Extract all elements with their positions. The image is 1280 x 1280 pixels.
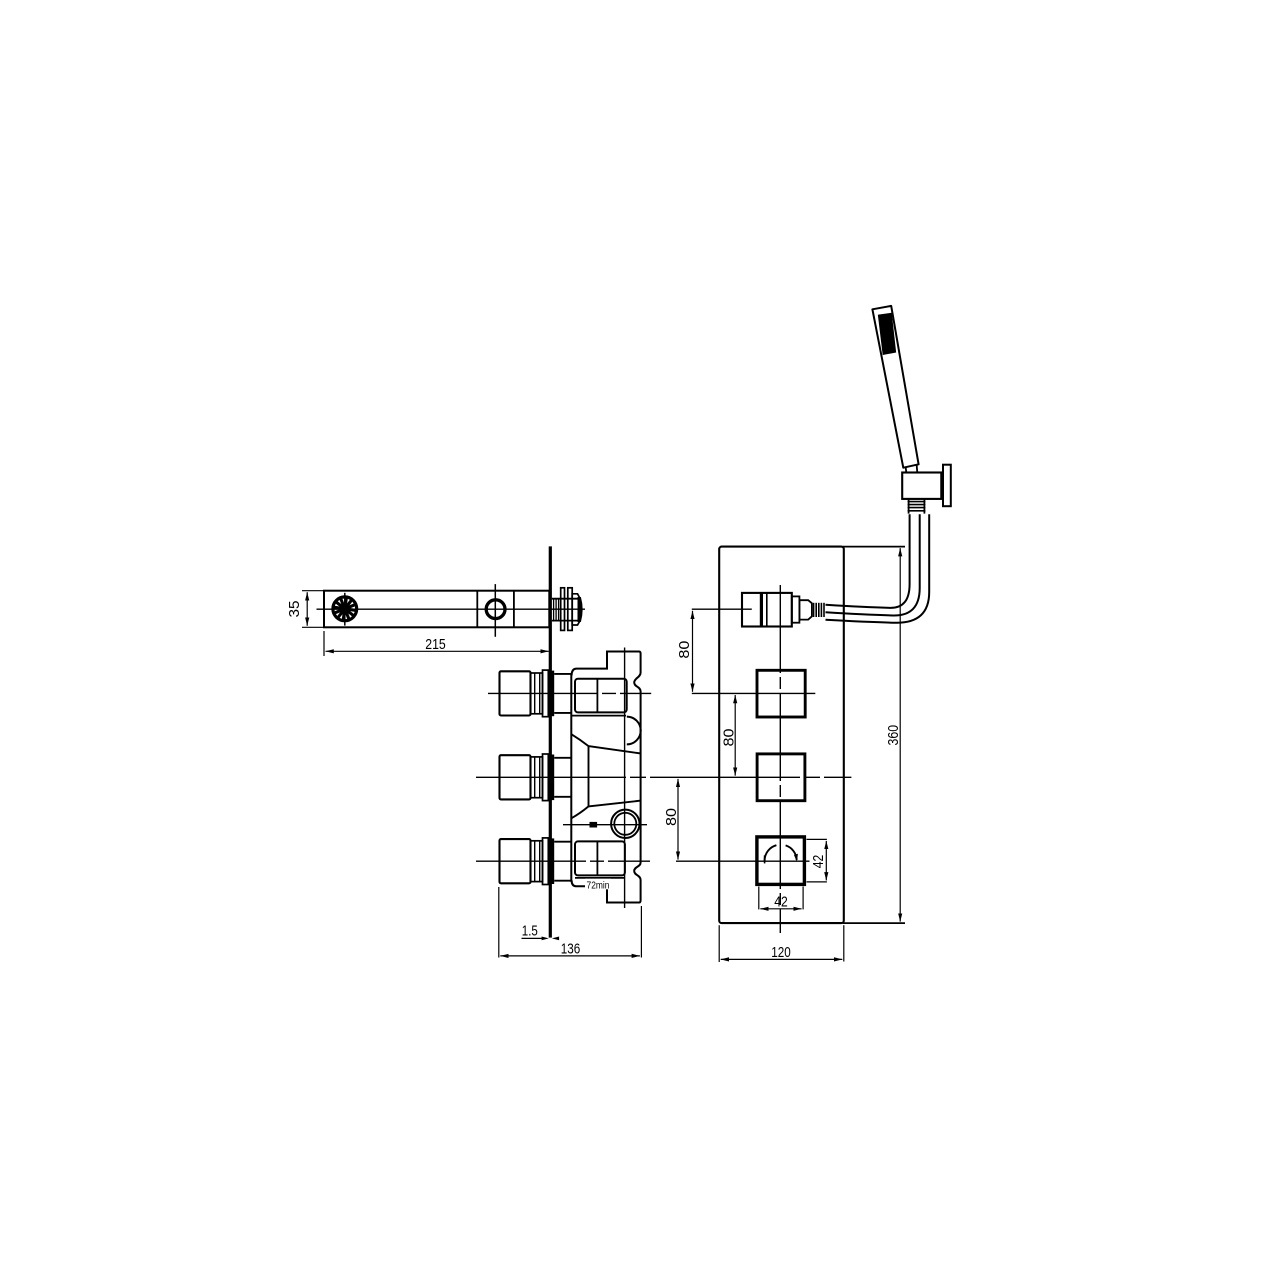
- svg-text:80: 80: [676, 641, 693, 659]
- svg-text:42: 42: [774, 893, 788, 910]
- svg-text:136: 136: [561, 940, 581, 957]
- svg-text:120: 120: [771, 944, 791, 961]
- svg-text:35: 35: [286, 601, 303, 618]
- svg-text:215: 215: [425, 636, 446, 653]
- svg-text:42: 42: [810, 855, 827, 869]
- svg-text:72min: 72min: [587, 879, 610, 891]
- svg-text:80: 80: [663, 808, 680, 826]
- svg-text:360: 360: [885, 725, 902, 746]
- svg-text:1.5: 1.5: [522, 922, 538, 939]
- svg-text:80: 80: [721, 729, 738, 747]
